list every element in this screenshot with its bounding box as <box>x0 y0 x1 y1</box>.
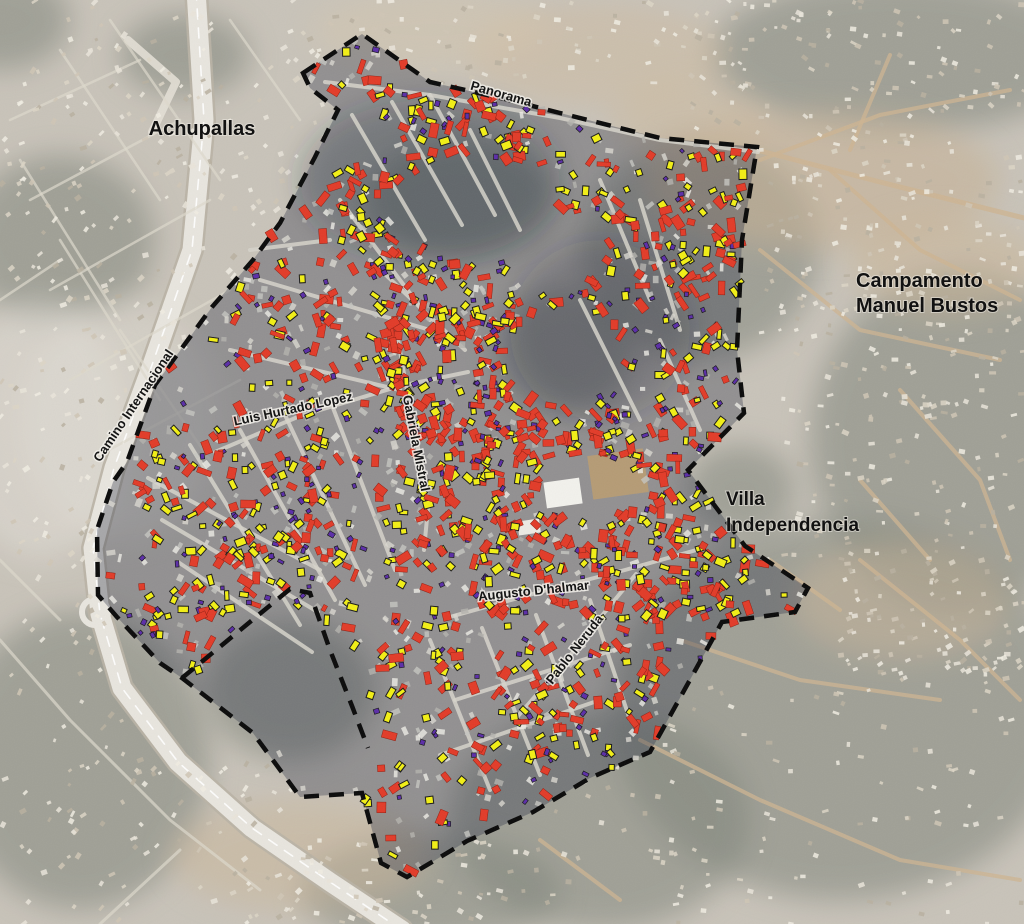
satellite-map: AchupallasCampamentoManuel BustosVillaIn… <box>0 0 1024 924</box>
map-figure: AchupallasCampamentoManuel BustosVillaIn… <box>0 0 1024 924</box>
film-grain-overlay <box>0 0 1024 924</box>
